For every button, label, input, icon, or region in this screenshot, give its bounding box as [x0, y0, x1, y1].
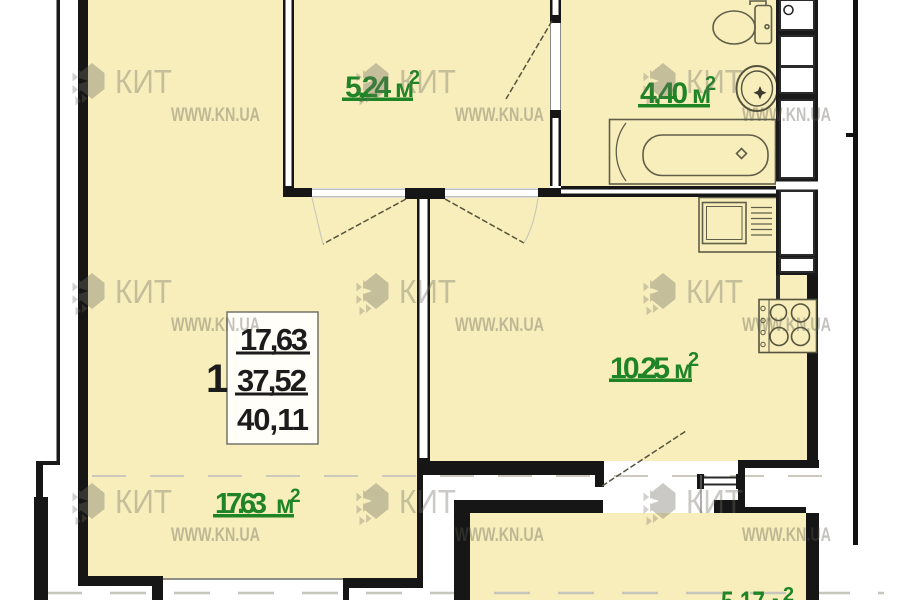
svg-text:2: 2 — [783, 584, 794, 600]
svg-text:2: 2 — [688, 349, 699, 371]
svg-text:40,11: 40,11 — [237, 402, 309, 437]
svg-text:2: 2 — [290, 486, 301, 507]
svg-text:1: 1 — [206, 357, 228, 401]
svg-text:5,17: 5,17 — [721, 586, 765, 600]
